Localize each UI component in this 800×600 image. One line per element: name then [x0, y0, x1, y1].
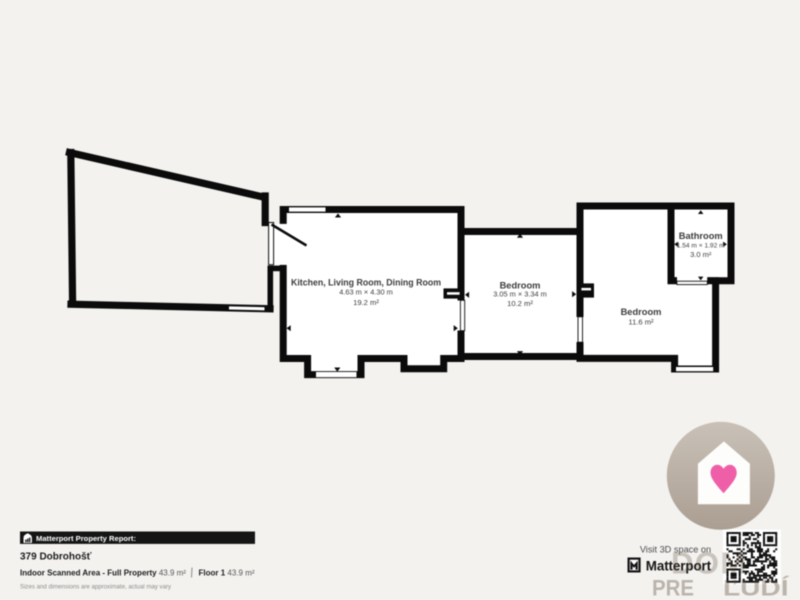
svg-text:Matterport Property Report:: Matterport Property Report: [36, 534, 136, 543]
svg-text:379 Dobrohošť: 379 Dobrohošť [20, 551, 92, 562]
svg-text:1.54 m × 1.92 m: 1.54 m × 1.92 m [677, 243, 725, 250]
svg-text:19.2 m²: 19.2 m² [353, 298, 379, 307]
svg-text:10.2 m²: 10.2 m² [507, 299, 533, 308]
svg-text:3.0 m²: 3.0 m² [690, 250, 712, 259]
svg-text:PRE: PRE [652, 576, 694, 600]
svg-text:ĽUDÍ: ĽUDÍ [723, 576, 789, 600]
svg-text:11.6 m²: 11.6 m² [628, 317, 654, 326]
svg-text:Sizes and dimensions are appro: Sizes and dimensions are approximate, ac… [20, 583, 172, 590]
svg-text:Kitchen, Living Room, Dining R: Kitchen, Living Room, Dining Room [291, 277, 441, 287]
svg-text:4.63 m × 4.30 m: 4.63 m × 4.30 m [339, 288, 393, 297]
svg-text:Bathroom: Bathroom [679, 231, 723, 241]
svg-text:3.05 m × 3.34 m: 3.05 m × 3.34 m [493, 290, 547, 299]
svg-text:Floor 1 43.9 m²: Floor 1 43.9 m² [199, 568, 255, 577]
svg-text:Bedroom: Bedroom [621, 307, 662, 317]
svg-text:Indoor Scanned Area - Full Pro: Indoor Scanned Area - Full Property 43.9… [20, 568, 186, 577]
